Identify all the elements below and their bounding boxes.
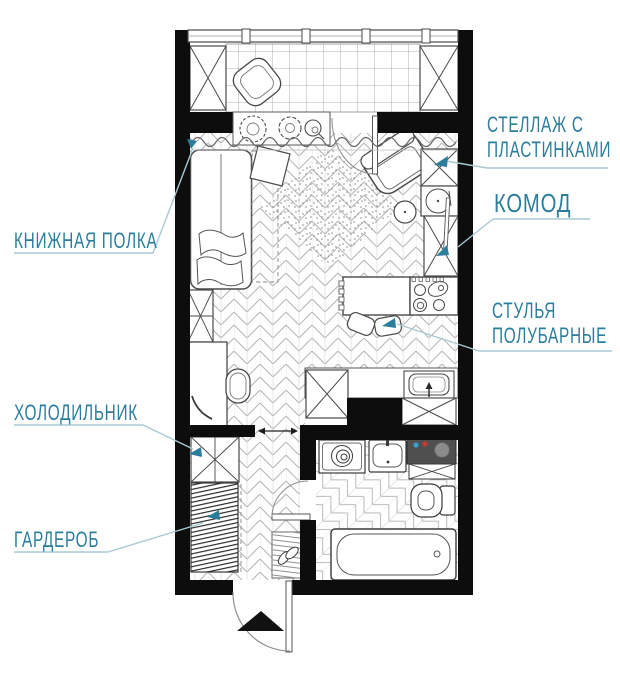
door-opening <box>233 580 292 595</box>
label-record-shelf-line1: СТЕЛЛАЖ С <box>487 113 611 138</box>
balcony-storage-left <box>190 46 226 110</box>
wall-bottom-left <box>175 580 233 595</box>
label-bar-stools-line1: СТУЛЬЯ <box>492 299 607 324</box>
label-bookshelf: КНИЖНАЯ ПОЛКА <box>14 229 158 254</box>
wall-bottom-right <box>292 580 473 595</box>
entry-direction-arrow <box>237 611 284 631</box>
shelf-box <box>188 290 213 342</box>
bed <box>191 150 252 289</box>
label-bar-stools-line2: ПОЛУБАРНЫЕ <box>492 324 607 349</box>
hook <box>339 289 344 294</box>
doormat <box>272 532 304 578</box>
faucet-tick <box>386 439 389 446</box>
knob <box>419 278 423 282</box>
mullion <box>242 29 250 43</box>
washing-machine <box>319 440 365 473</box>
door-leaf <box>286 581 292 652</box>
hook <box>339 297 344 302</box>
desk <box>188 342 227 427</box>
heater-dial <box>435 443 450 458</box>
bathtub <box>331 529 456 580</box>
label-dresser: КОМОД <box>494 189 571 218</box>
plants-sill <box>233 112 330 145</box>
knob <box>440 278 444 282</box>
drain-dot <box>387 461 390 464</box>
tub-outer <box>331 529 456 580</box>
balcony-storage-right <box>420 46 458 110</box>
wall-partition-left <box>188 425 255 437</box>
table-center <box>404 211 406 213</box>
wall-kitchen-chunk <box>347 398 402 427</box>
table-top <box>343 277 410 315</box>
turntable <box>421 186 458 216</box>
wall-balcony-left <box>188 112 233 133</box>
water-heater <box>407 437 456 464</box>
door-leaf <box>272 514 310 520</box>
bathroom-sink <box>369 439 406 472</box>
mullion <box>362 29 370 43</box>
knob <box>426 278 430 282</box>
side-table <box>394 201 416 223</box>
label-record-shelf: СТЕЛЛАЖ С ПЛАСТИНКАМИ <box>487 113 611 162</box>
spindle <box>437 200 439 202</box>
refrigerator <box>191 437 239 482</box>
mullion <box>302 29 310 43</box>
wardrobe <box>191 483 241 572</box>
knob <box>412 278 416 282</box>
stove <box>410 277 458 315</box>
box <box>421 186 458 216</box>
label-bar-stools: СТУЛЬЯ ПОЛУБАРНЫЕ <box>492 299 607 348</box>
wall-partition-right <box>300 425 458 440</box>
toilet <box>411 484 455 517</box>
desk-top <box>188 342 227 427</box>
balcony-window <box>188 29 458 43</box>
label-refrigerator: ХОЛОДИЛЬНИК <box>14 401 138 426</box>
wall-left <box>175 30 190 595</box>
label-wardrobe: ГАРДЕРОБ <box>14 528 99 553</box>
record-shelf <box>421 149 458 186</box>
floor-plan-canvas: КНИЖНАЯ ПОЛКА СТЕЛЛАЖ С ПЛАСТИНКАМИ КОМО… <box>0 0 620 674</box>
valve-blue <box>413 442 418 447</box>
dresser <box>424 216 458 276</box>
mullion <box>422 29 430 43</box>
entrance-door <box>233 580 292 652</box>
body <box>319 440 365 473</box>
label-record-shelf-line2: ПЛАСТИНКАМИ <box>487 138 611 163</box>
bedside-table <box>250 146 290 186</box>
wall-bath-left-upper <box>300 440 316 480</box>
bowl <box>411 484 442 517</box>
hook <box>339 281 344 286</box>
bar-table <box>339 277 410 315</box>
desk-chair <box>226 369 250 403</box>
under-heater-cabinet <box>409 464 455 479</box>
wall-balcony-right <box>377 112 458 133</box>
hook <box>339 305 344 310</box>
knob <box>433 278 437 282</box>
wall-bath-left-lower <box>300 520 316 580</box>
valve-red <box>422 441 427 446</box>
plant-icon <box>279 117 301 139</box>
clothes-hatch <box>191 483 238 572</box>
wall-right <box>458 30 473 595</box>
